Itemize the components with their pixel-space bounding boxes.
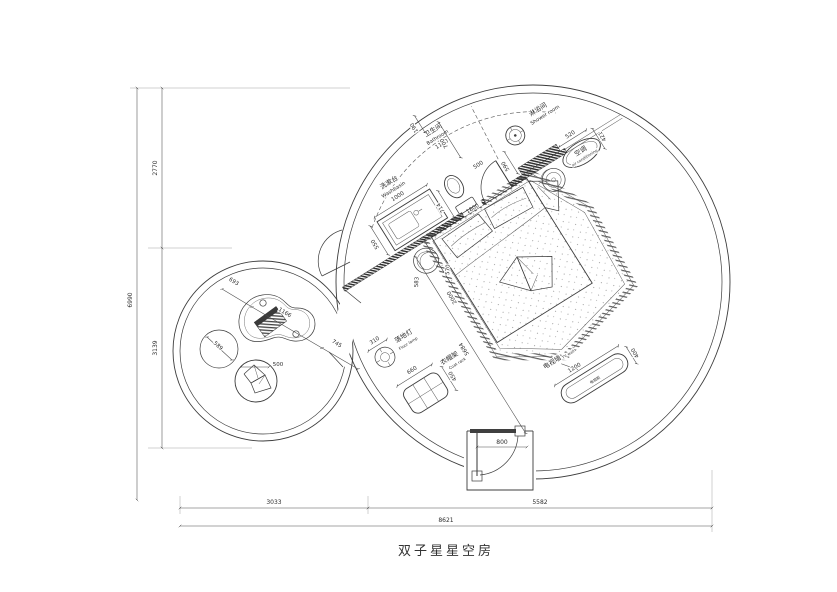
floor-plan-drawing: 6990 2770 3139 3033 5582 8621 双子星星空房: [0, 0, 837, 592]
floor-lamp: 310 落地灯 Floor lamp: [364, 318, 423, 371]
dim-rack-width: 660: [406, 365, 419, 376]
dim-stool-a: 583: [414, 276, 421, 287]
dim-overall-width: 8621: [438, 517, 453, 524]
dim-tv-depth: 400: [630, 346, 641, 359]
shower-head-icon: [502, 122, 528, 148]
bed-platform: [424, 156, 650, 387]
entry-vestibule: 800: [464, 426, 536, 490]
dim-bath-door: 500: [473, 160, 486, 171]
dim-left-width: 3033: [266, 499, 281, 506]
dim-lower-height: 3139: [152, 340, 159, 355]
faucet-icon: [413, 209, 420, 216]
dim-lounge-a: 693: [227, 277, 240, 288]
dim-beanbag: 500: [273, 362, 284, 368]
drawing-title: 双子星星空房: [398, 543, 494, 559]
bedroom-bathroom-zone: 1800 500 550 洗漱台 Washbasin 1000: [275, 23, 736, 481]
bottom-dimension-chain: 3033 5582 8621: [180, 499, 712, 526]
dim-basin-toilet-gap: 714: [436, 201, 447, 214]
tv-cabinet-label: 电视柜: [589, 375, 601, 385]
dim-stool-b: 570: [445, 264, 452, 275]
beanbag: 500: [235, 360, 284, 402]
dim-room-diagonal: 5684: [458, 341, 471, 356]
left-dimension-chain: 6990 2770 3139: [127, 88, 162, 500]
dim-ac-width: 520: [564, 130, 577, 141]
extension-lines: [130, 88, 712, 532]
floor-plan-page: 6990 2770 3139 3033 5582 8621 双子星星空房: [0, 0, 837, 592]
passage-door: [318, 230, 350, 276]
door-threshold: [470, 429, 516, 433]
dim-overall-height: 6990: [127, 292, 134, 307]
pouf: 589: [200, 330, 238, 368]
door-jamb: [515, 426, 525, 436]
dim-upper-height: 2770: [152, 160, 159, 175]
dim-entry-door: 800: [496, 439, 508, 446]
dim-washbasin-depth: 550: [370, 238, 381, 251]
cup: [260, 300, 266, 306]
dim-lamp: 310: [369, 335, 382, 346]
dim-wall-top: 190: [409, 121, 420, 134]
kidney-table: [239, 295, 315, 342]
dim-right-width: 5582: [532, 499, 547, 506]
dim-rack-depth: 450: [448, 369, 459, 382]
dim-ac-depth: 421: [598, 130, 609, 142]
